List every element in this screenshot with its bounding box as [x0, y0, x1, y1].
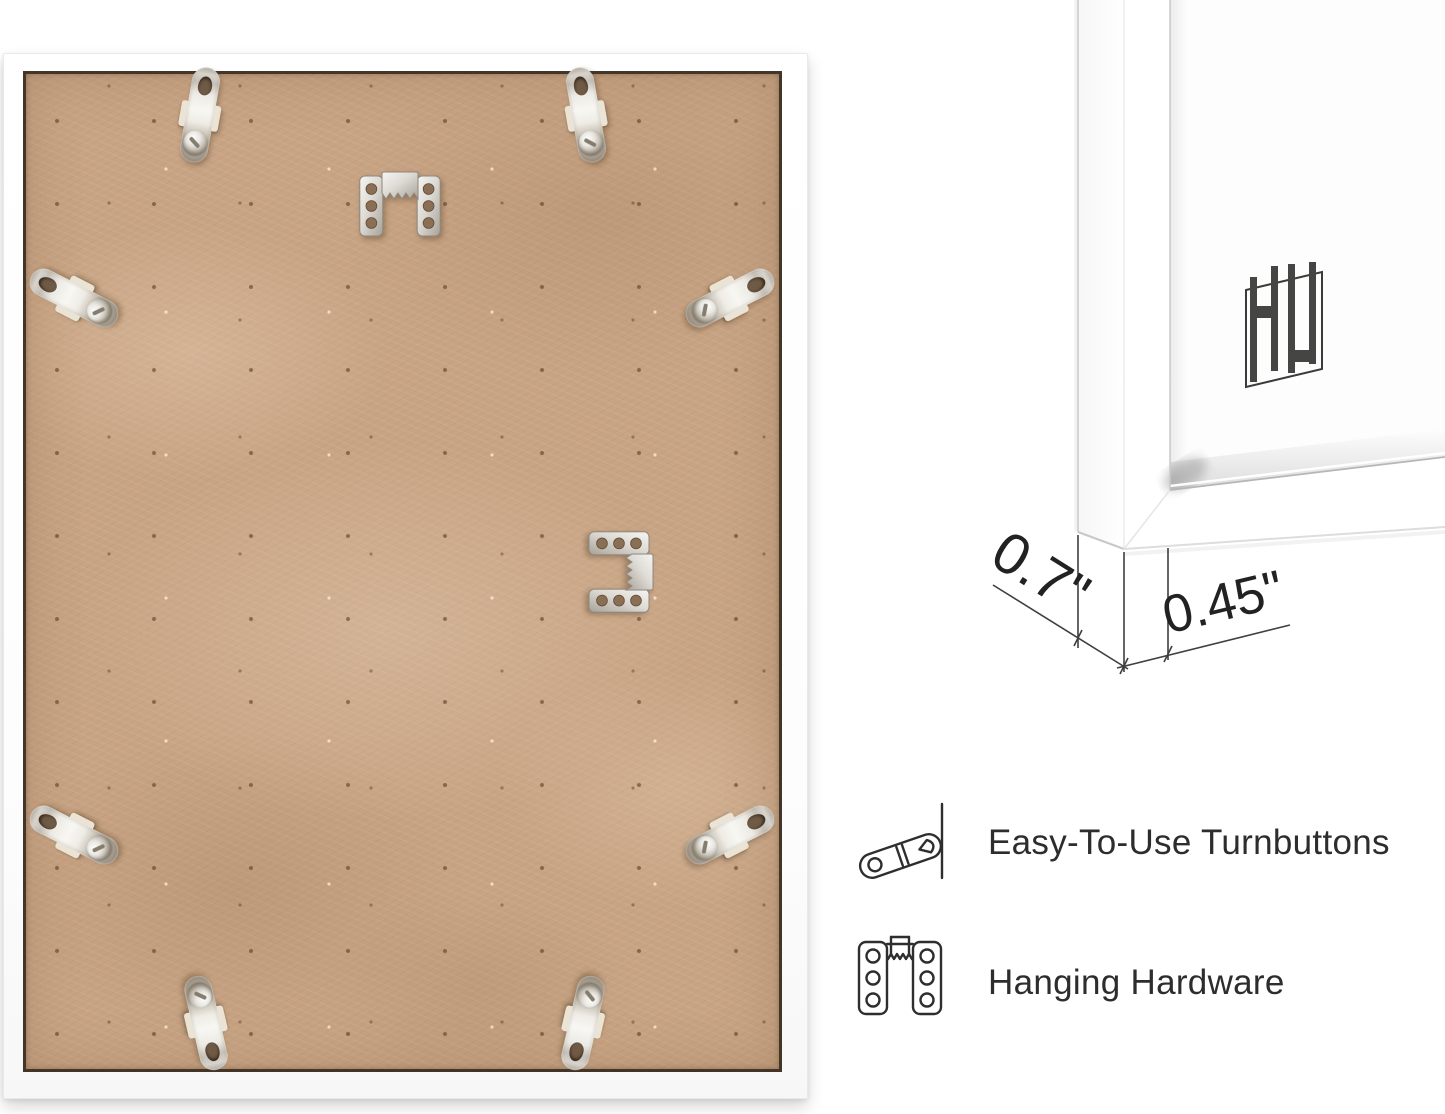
frame-side-face	[1078, 0, 1124, 549]
face-dimension-label: 0.45"	[1157, 560, 1289, 646]
frame-mat-area	[1170, 0, 1445, 490]
sawtooth-hanger	[588, 531, 654, 613]
frame-corner-view: 0.7" 0.45"	[945, 0, 1445, 690]
lip-shadow-left	[1170, 0, 1187, 490]
frame-back-photo	[3, 53, 808, 1099]
frame-front-face-vertical	[1124, 0, 1170, 549]
turnbutton-icon	[854, 798, 946, 884]
product-infographic: 0.7" 0.45" Easy-To-Use Turnbuttons Hangi…	[0, 0, 1445, 1114]
sawtooth-hanger	[359, 171, 441, 237]
hanging-hardware-icon	[855, 935, 945, 1019]
feature-label: Hanging Hardware	[988, 963, 1285, 1003]
feature-label: Easy-To-Use Turnbuttons	[988, 823, 1390, 863]
